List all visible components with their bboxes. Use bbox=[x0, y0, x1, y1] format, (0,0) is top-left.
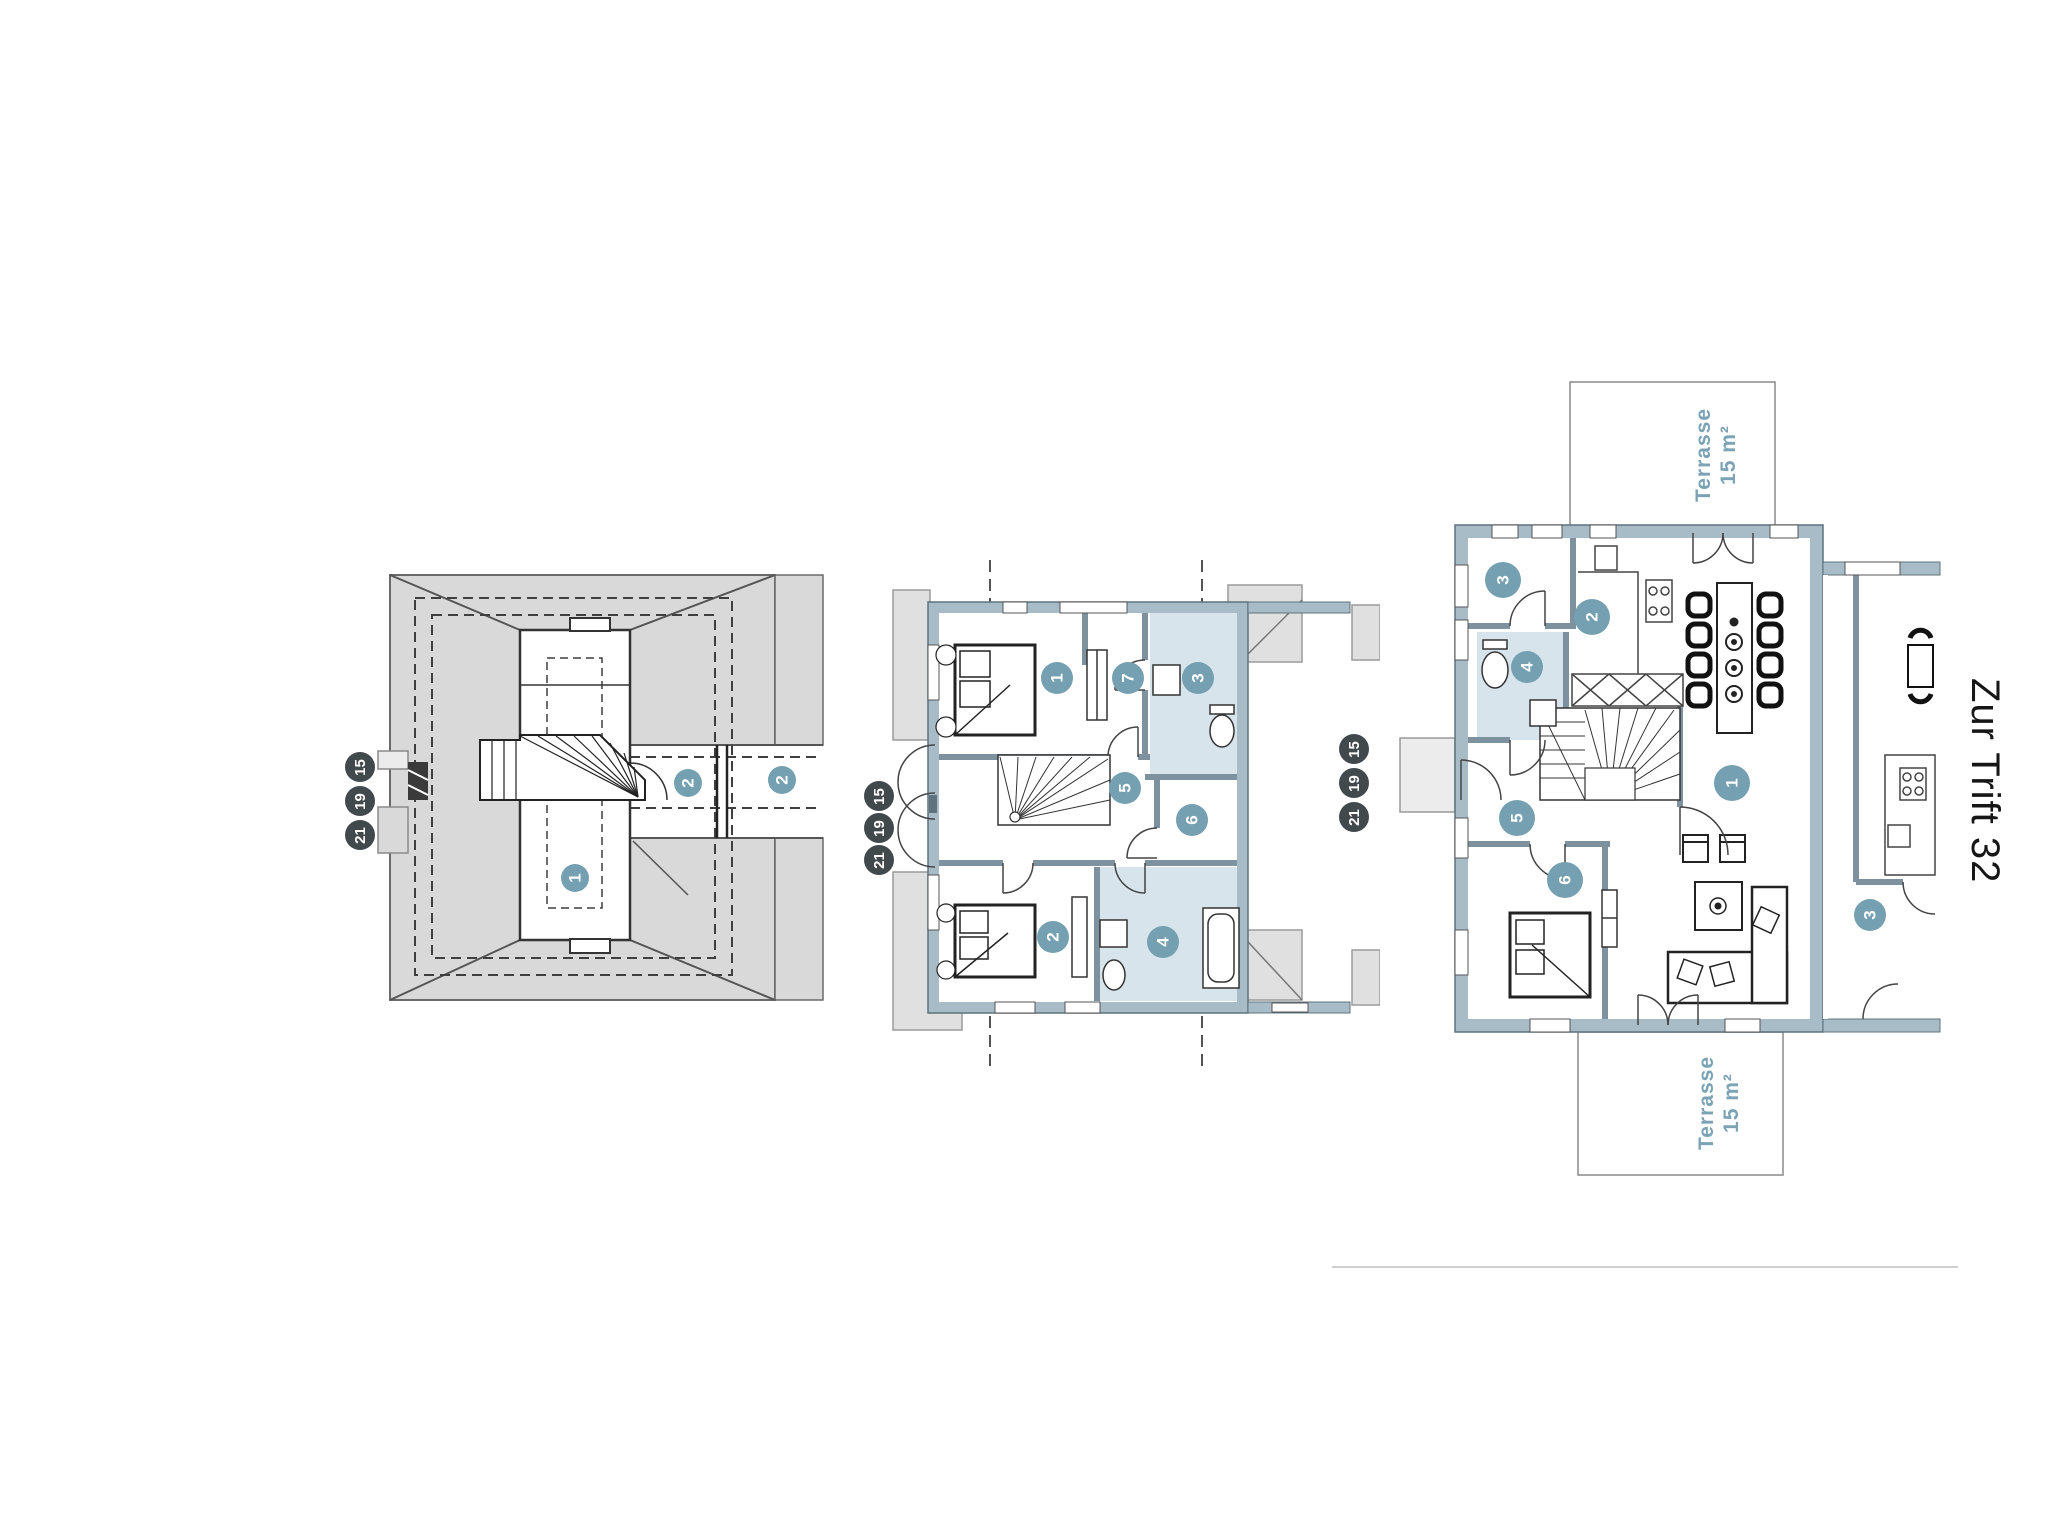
ground-floor-plan: Terrasse 15 m² Terrasse 15 m² bbox=[1380, 370, 2020, 1290]
sideboard bbox=[1072, 897, 1087, 977]
svg-text:Terrasse: Terrasse bbox=[1692, 408, 1715, 502]
roof-plan: 1 2 2 bbox=[370, 555, 840, 1035]
storage-hatch bbox=[1572, 674, 1683, 706]
room-badge: 1 bbox=[1041, 662, 1073, 694]
svg-text:Terrasse: Terrasse bbox=[1695, 1056, 1718, 1150]
room-badge: 2 bbox=[1037, 921, 1069, 953]
address-label: Zur Trift 32 bbox=[1962, 678, 2007, 883]
stairs bbox=[998, 755, 1110, 825]
room-badge: 3 bbox=[1182, 662, 1214, 694]
dining-table bbox=[1717, 583, 1752, 733]
floor-plan-sheet: 1 2 2 bbox=[0, 0, 2048, 1538]
sheet-marker: 21 bbox=[1339, 802, 1369, 832]
room-badge: 7 bbox=[1112, 662, 1144, 694]
svg-text:2: 2 bbox=[1583, 612, 1602, 621]
terrace-bottom: Terrasse 15 m² bbox=[1578, 1032, 1783, 1175]
room-badge: 2 bbox=[768, 766, 796, 794]
room-badge: 4 bbox=[1511, 651, 1543, 683]
sheet-marker: 15 bbox=[864, 781, 894, 811]
sheet-marker: 15 bbox=[1339, 734, 1369, 764]
svg-text:4: 4 bbox=[1518, 662, 1537, 672]
svg-text:15 m²: 15 m² bbox=[1717, 425, 1740, 485]
svg-text:1: 1 bbox=[1723, 778, 1742, 787]
balcony-door-frame bbox=[929, 795, 937, 813]
svg-text:6: 6 bbox=[1183, 815, 1202, 824]
room-badge: 5 bbox=[1109, 772, 1141, 804]
wardrobe bbox=[1087, 650, 1107, 720]
room-badge: 4 bbox=[1147, 926, 1179, 958]
svg-text:5: 5 bbox=[1116, 783, 1135, 792]
room-badge: 1 bbox=[561, 864, 589, 892]
room-badge: 2 bbox=[674, 769, 702, 797]
room-badge: 6 bbox=[1176, 804, 1208, 836]
svg-text:2: 2 bbox=[773, 775, 792, 784]
stairs bbox=[1540, 708, 1680, 800]
svg-text:7: 7 bbox=[1119, 673, 1138, 682]
upper-floor-plan: 1 7 3 5 6 2 4 bbox=[870, 545, 1380, 1085]
page-divider-line bbox=[1332, 1266, 1958, 1268]
svg-text:1: 1 bbox=[1048, 673, 1067, 682]
tv-sideboard bbox=[1602, 890, 1617, 947]
svg-text:2: 2 bbox=[1044, 932, 1063, 941]
svg-text:15 m²: 15 m² bbox=[1720, 1073, 1743, 1133]
sheet-marker: 19 bbox=[1339, 768, 1369, 798]
room-badge: 1 bbox=[1714, 765, 1750, 801]
sheet-marker: 19 bbox=[345, 786, 375, 816]
svg-text:3: 3 bbox=[1189, 673, 1208, 682]
svg-text:3: 3 bbox=[1494, 575, 1513, 584]
coffee-table bbox=[1695, 882, 1742, 930]
svg-text:4: 4 bbox=[1154, 937, 1173, 947]
room-badge: 2 bbox=[1574, 599, 1610, 635]
svg-text:5: 5 bbox=[1508, 813, 1527, 822]
sheet-marker: 21 bbox=[864, 845, 894, 875]
bed bbox=[1510, 913, 1590, 997]
entrance-porch bbox=[1400, 738, 1455, 812]
room-badge: 3 bbox=[1854, 899, 1886, 931]
room-badge: 5 bbox=[1499, 800, 1535, 836]
svg-text:3: 3 bbox=[1861, 910, 1880, 919]
neighbor-kitchen bbox=[1885, 755, 1935, 875]
room-badge: 3 bbox=[1485, 562, 1521, 598]
terrace-top: Terrasse 15 m² bbox=[1570, 382, 1775, 527]
sheet-marker: 15 bbox=[345, 752, 375, 782]
neighbor-dining-set bbox=[1908, 630, 1933, 701]
svg-text:6: 6 bbox=[1556, 875, 1575, 884]
svg-text:1: 1 bbox=[566, 873, 585, 882]
chimney bbox=[408, 762, 428, 800]
room-badge: 6 bbox=[1547, 862, 1583, 898]
sheet-marker: 19 bbox=[864, 813, 894, 843]
sheet-marker: 21 bbox=[345, 820, 375, 850]
svg-text:2: 2 bbox=[679, 778, 698, 787]
